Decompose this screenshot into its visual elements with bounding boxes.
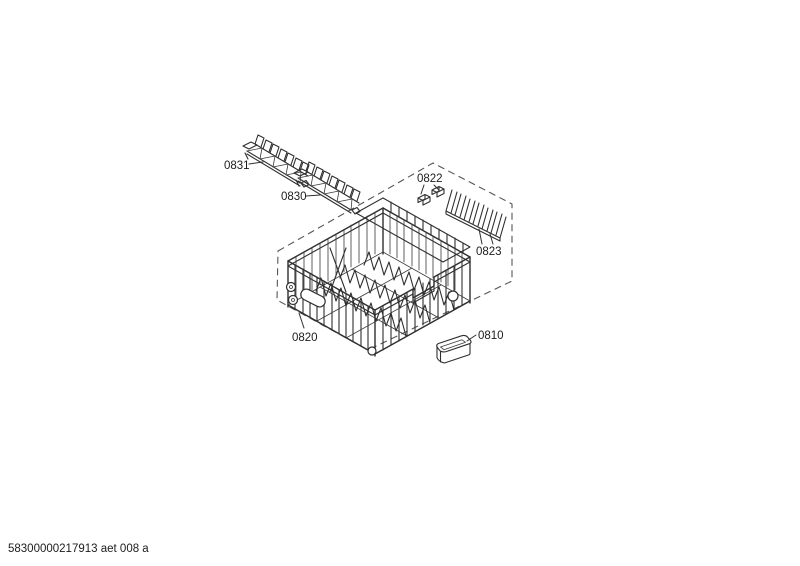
leader-lines [249, 162, 493, 341]
part-drawing-0830 [294, 162, 360, 214]
parts-diagram-page: 0831 0830 0822 0823 0820 0810 5830000021… [0, 0, 800, 566]
part-drawing-0810 [437, 335, 471, 363]
part-label-0831: 0831 [224, 160, 250, 172]
part-label-0830: 0830 [281, 191, 307, 203]
document-code: 58300000217913 aet 008 a [8, 543, 149, 555]
part-drawing-0822 [418, 187, 444, 206]
part-label-0823: 0823 [476, 246, 502, 258]
part-label-0822: 0822 [417, 173, 443, 185]
exploded-diagram-canvas: 0831 0830 0822 0823 0820 0810 5830000021… [0, 0, 800, 566]
part-label-0820: 0820 [292, 332, 318, 344]
part-label-0810: 0810 [478, 330, 504, 342]
part-drawing-0823 [446, 190, 506, 241]
